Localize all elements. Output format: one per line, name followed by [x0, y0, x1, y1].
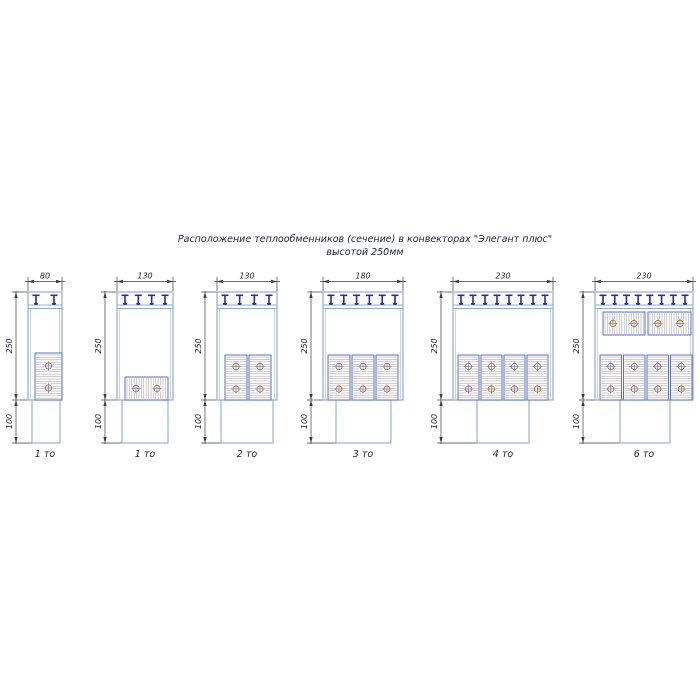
dim-text: 250	[5, 338, 14, 353]
heat-exchanger-block	[603, 312, 645, 335]
heat-exchanger-block	[527, 355, 548, 400]
width-dimension: 230	[450, 272, 556, 292]
diagram-caption: 1 то	[135, 449, 156, 460]
convector-diagram-5: 2302501004 то	[430, 272, 556, 461]
dim-text: 230	[495, 272, 510, 281]
heat-exchanger-block	[125, 377, 168, 400]
heat-exchanger-block	[458, 355, 479, 400]
heat-exchanger-block	[328, 355, 350, 400]
heat-exchanger-block	[481, 355, 502, 400]
width-dimension: 130	[214, 272, 280, 292]
diagram-caption: 2 то	[237, 449, 258, 460]
convector-diagram-2: 1302501001 то	[94, 272, 176, 461]
heat-exchanger-block	[600, 355, 622, 400]
width-dimension: 230	[592, 272, 696, 292]
dim-text: 250	[194, 338, 203, 353]
heat-exchanger-block	[376, 355, 398, 400]
heat-exchanger-block	[624, 355, 646, 400]
diagram-caption: 1 то	[35, 449, 56, 460]
heat-exchanger-block	[647, 355, 669, 400]
heat-exchanger-block	[671, 355, 693, 400]
lower-duct	[477, 400, 529, 443]
heat-exchanger-block	[352, 355, 374, 400]
lower-duct	[221, 400, 273, 443]
dim-text: 100	[5, 414, 14, 429]
width-dimension: 130	[114, 272, 176, 292]
dim-text: 100	[194, 414, 203, 429]
heat-exchanger-block	[35, 353, 62, 400]
diagram-caption: 3 то	[353, 449, 374, 460]
dim-text: 180	[355, 272, 370, 281]
lower-duct	[620, 400, 670, 443]
dim-text: 130	[137, 272, 152, 281]
heat-exchanger-block	[648, 312, 691, 335]
convector-diagram-6: 2302501006 то	[572, 272, 696, 461]
dim-text: 100	[572, 414, 581, 429]
dim-text: 130	[239, 272, 254, 281]
convector-diagram-4: 1802501003 то	[300, 272, 406, 461]
lower-duct	[336, 400, 391, 443]
heat-exchanger-block	[249, 355, 271, 400]
lower-duct	[122, 400, 168, 443]
dim-text: 80	[40, 272, 50, 281]
diagram-caption: 6 то	[634, 449, 655, 460]
dim-text: 100	[300, 414, 309, 429]
dim-text: 100	[430, 414, 439, 429]
diagram-caption: 4 то	[493, 449, 514, 460]
width-dimension: 80	[25, 272, 65, 292]
dim-text: 250	[300, 338, 309, 353]
convector-diagram-1: 802501001 то	[5, 272, 65, 461]
width-dimension: 180	[320, 272, 406, 292]
dim-text: 230	[636, 272, 651, 281]
dim-text: 100	[94, 414, 103, 429]
heat-exchanger-block	[225, 355, 247, 400]
dim-text: 250	[572, 338, 581, 353]
convector-diagram-3: 1302501002 то	[194, 272, 280, 461]
drawing-sheet: Расположение теплообменников (сечение) в…	[0, 0, 700, 700]
dim-text: 250	[430, 338, 439, 353]
lower-duct	[32, 400, 60, 443]
heat-exchanger-block	[504, 355, 525, 400]
dim-text: 250	[94, 338, 103, 353]
drawing-canvas: 802501001 то1302501001 то1302501002 то18…	[0, 0, 700, 700]
